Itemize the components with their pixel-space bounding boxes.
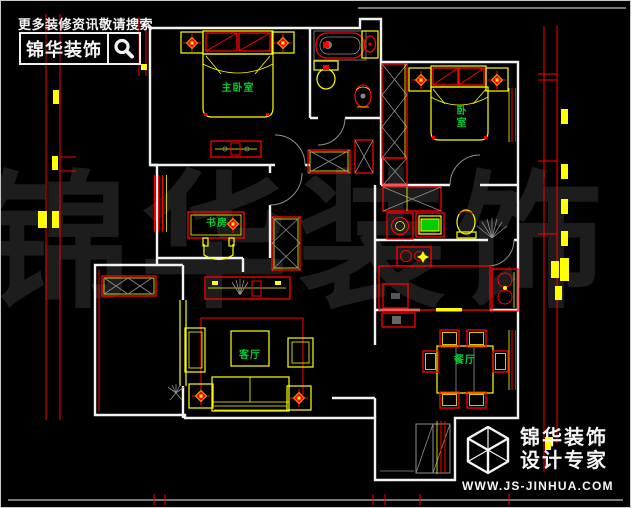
dining-room-furniture xyxy=(423,330,508,408)
light-icon xyxy=(192,387,210,405)
balcony-left xyxy=(102,276,156,296)
cube-logo-icon xyxy=(462,424,514,476)
plant xyxy=(477,218,507,238)
kitchen-fixtures xyxy=(379,247,518,327)
light-icon xyxy=(488,71,506,89)
room-label-bedroom: 卧室 xyxy=(454,105,464,129)
second-bathroom-fixtures xyxy=(387,210,507,239)
hallway-wardrobes xyxy=(272,140,373,270)
search-icon xyxy=(107,34,139,63)
master-bedroom-furniture xyxy=(181,31,294,157)
footer-brand-name: 锦华装饰 xyxy=(520,427,608,450)
footer-brand-block: 锦华装饰 设计专家 WWW.JS-JINHUA.COM xyxy=(462,424,624,493)
brand-search-box: 锦华装饰 xyxy=(19,32,141,65)
counter xyxy=(379,266,490,310)
balcony-bottom xyxy=(380,421,450,474)
light-icon xyxy=(290,389,308,407)
dining-table xyxy=(437,346,493,393)
bedroom-furniture xyxy=(382,64,508,211)
study-furniture xyxy=(188,212,290,299)
room-label-study: 书房 xyxy=(206,219,228,229)
walls xyxy=(95,19,518,480)
search-tagline: 更多装修资讯敬请搜索 xyxy=(18,14,153,33)
room-label-living-room: 客厅 xyxy=(239,351,261,361)
living-room-furniture xyxy=(168,318,313,411)
brand-name: 锦华装饰 xyxy=(21,34,107,63)
light-icon xyxy=(412,71,430,89)
footer-slogan: 设计专家 xyxy=(520,450,608,473)
light-icon xyxy=(183,34,201,52)
bathroom-fixtures xyxy=(314,31,378,107)
room-label-master-bedroom: 主卧室 xyxy=(222,84,255,94)
light-icon xyxy=(274,34,292,52)
room-label-dining-room: 餐厅 xyxy=(454,356,476,366)
cad-floor-plan-image: 锦华装饰 xyxy=(0,0,631,508)
footer-website: WWW.JS-JINHUA.COM xyxy=(462,479,624,493)
plant xyxy=(168,384,184,400)
